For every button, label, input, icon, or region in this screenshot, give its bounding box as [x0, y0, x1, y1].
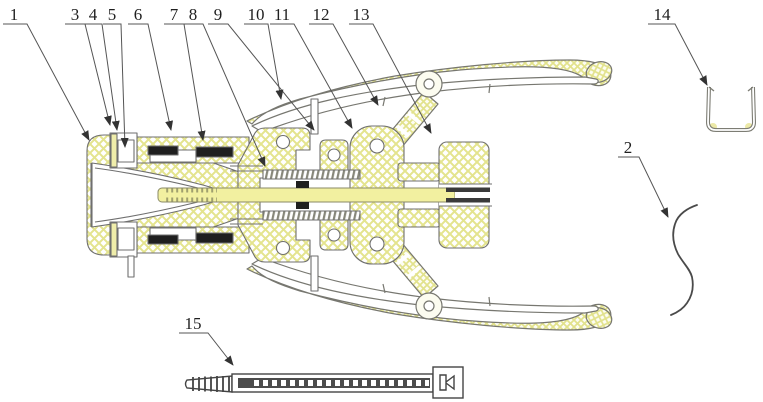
callout-label-14: 14	[654, 5, 672, 24]
leader-10	[244, 24, 281, 99]
part-pin	[311, 256, 318, 291]
callout-label-4: 4	[89, 5, 98, 24]
leader-2	[618, 157, 668, 217]
leader-1	[3, 24, 89, 140]
part-seal	[148, 235, 178, 244]
figure-canvas: 1 3 4 5 6 7 8 9 10 11 12 13 14 2 15	[0, 0, 763, 402]
leader-14	[648, 24, 707, 85]
part-seal	[296, 181, 309, 188]
callout-label-13: 13	[353, 5, 370, 24]
part-push-rod	[446, 198, 490, 203]
callout-label-10: 10	[248, 5, 265, 24]
part-pin	[128, 256, 134, 277]
part-connector-bar	[398, 209, 440, 227]
callout-label-1: 1	[10, 5, 19, 24]
callout-label-15: 15	[185, 314, 202, 333]
part-seal	[148, 146, 178, 155]
part-connector-bar	[398, 163, 440, 181]
callout-label-11: 11	[274, 5, 290, 24]
part-push-rod	[446, 188, 490, 193]
part-seal	[196, 233, 233, 243]
leader-5	[103, 24, 125, 147]
part-s-wire	[671, 205, 697, 315]
callout-label-7: 7	[170, 5, 179, 24]
part-ratchet-upper	[263, 170, 360, 179]
part-pin	[311, 99, 318, 134]
callout-label-9: 9	[214, 5, 223, 24]
cable-tie-head	[433, 367, 463, 398]
part-ratchet-lower	[263, 211, 360, 220]
pivot-hole	[424, 79, 434, 89]
part-seal	[196, 147, 233, 157]
part-top-bracket	[110, 133, 137, 168]
leader-6	[128, 24, 171, 130]
callout-label-2: 2	[624, 138, 633, 157]
callout-label-3: 3	[71, 5, 80, 24]
leader-3	[65, 24, 110, 125]
part-bottom-bracket	[110, 222, 137, 277]
part-seal	[296, 202, 309, 209]
callout-label-6: 6	[134, 5, 143, 24]
figure-page: 1 3 4 5 6 7 8 9 10 11 12 13 14 2 15	[0, 0, 763, 402]
callout-label-8: 8	[189, 5, 198, 24]
part-cable-tie	[186, 367, 464, 398]
callout-label-12: 12	[313, 5, 330, 24]
part-u-clip	[708, 87, 754, 131]
leader-15	[179, 333, 233, 365]
callout-label-5: 5	[108, 5, 117, 24]
